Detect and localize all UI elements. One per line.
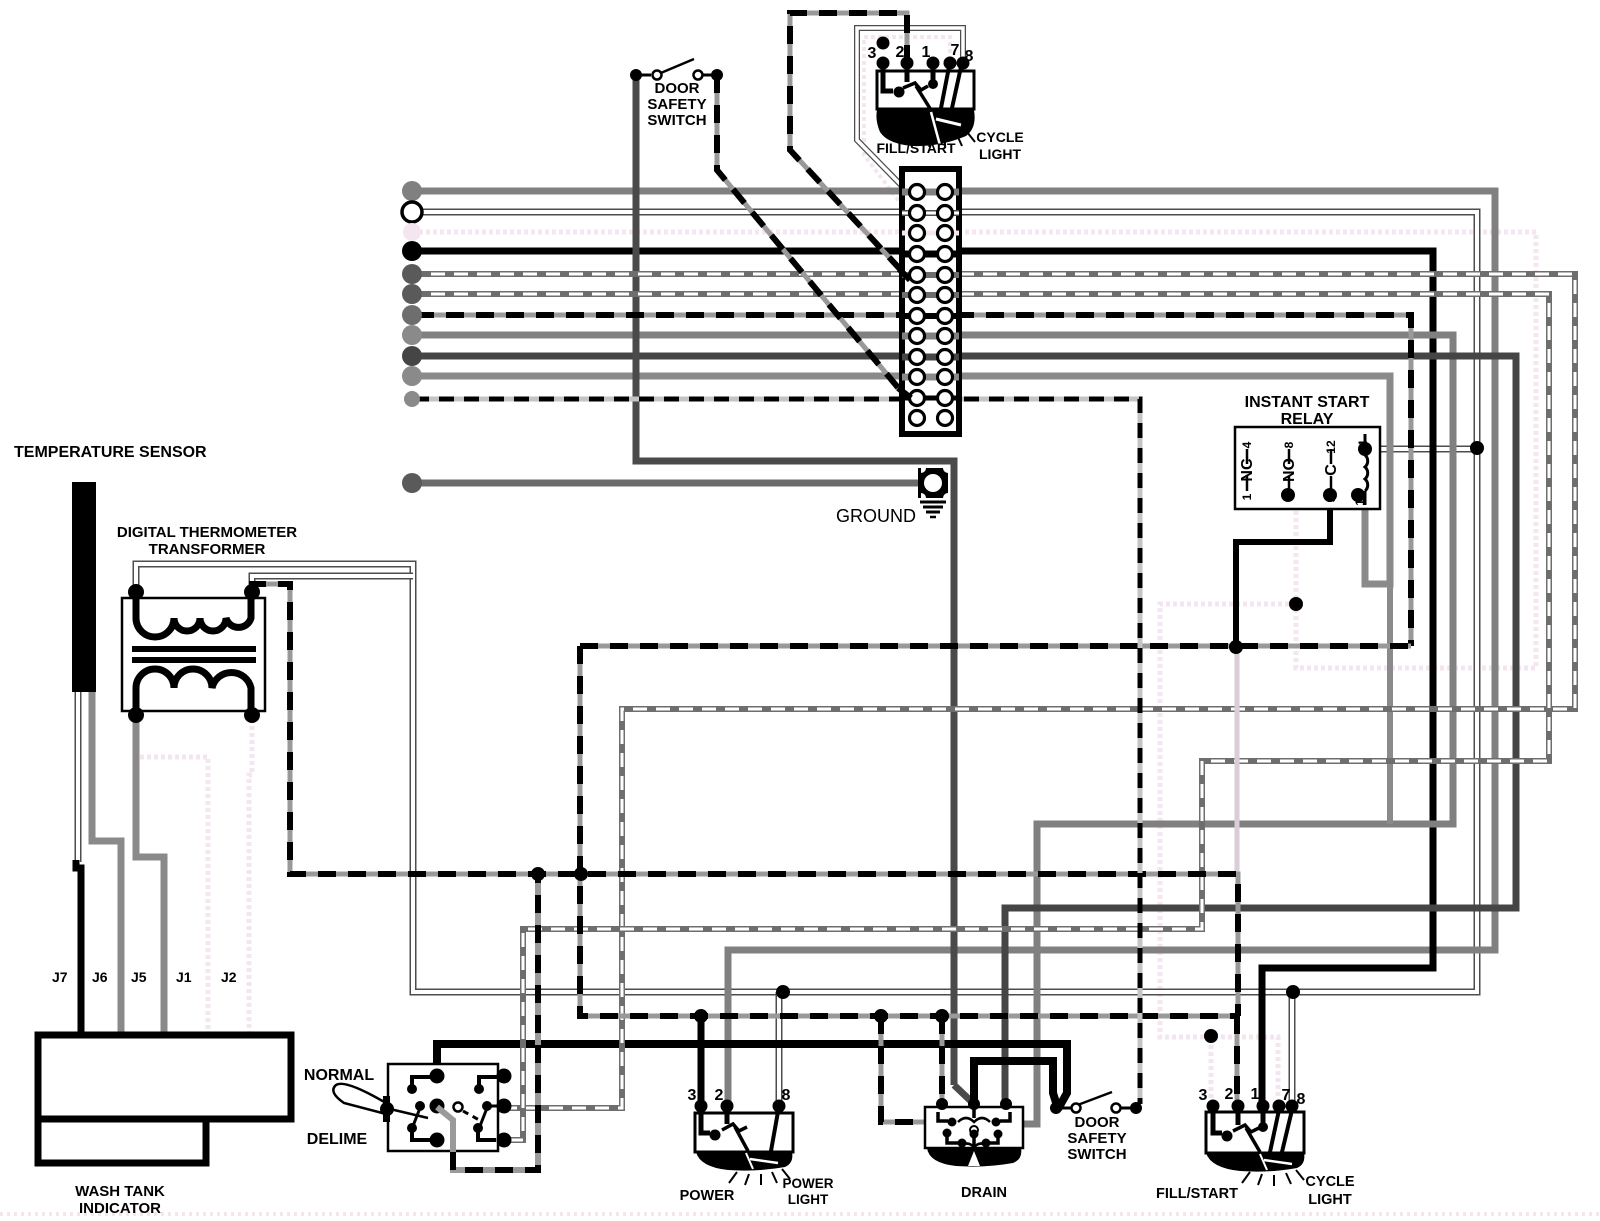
svg-text:POWER: POWER bbox=[680, 1188, 735, 1204]
svg-text:GROUND: GROUND bbox=[836, 506, 916, 526]
svg-text:1: 1 bbox=[922, 44, 931, 61]
svg-text:7: 7 bbox=[1282, 1087, 1291, 1104]
svg-text:8: 8 bbox=[965, 48, 974, 65]
svg-text:TRANSFORMER: TRANSFORMER bbox=[149, 541, 266, 558]
svg-text:SAFETY: SAFETY bbox=[647, 96, 706, 113]
svg-text:CYCLE: CYCLE bbox=[976, 129, 1023, 145]
svg-text:LIGHT: LIGHT bbox=[788, 1192, 829, 1207]
svg-text:3: 3 bbox=[868, 45, 877, 62]
svg-text:FILL/START: FILL/START bbox=[876, 140, 956, 156]
svg-text:DELIME: DELIME bbox=[307, 1131, 368, 1148]
svg-text:POWER: POWER bbox=[782, 1176, 833, 1191]
svg-text:NORMAL: NORMAL bbox=[304, 1067, 374, 1084]
svg-text:4: 4 bbox=[1240, 441, 1254, 448]
svg-text:SWITCH: SWITCH bbox=[1067, 1146, 1126, 1163]
svg-text:J2: J2 bbox=[221, 969, 237, 985]
svg-text:RELAY: RELAY bbox=[1281, 411, 1334, 428]
svg-text:8: 8 bbox=[1297, 1091, 1306, 1108]
svg-text:DOOR: DOOR bbox=[1075, 1114, 1120, 1131]
svg-text:2: 2 bbox=[1225, 1086, 1234, 1103]
svg-text:DOOR: DOOR bbox=[655, 80, 700, 97]
svg-text:DRAIN: DRAIN bbox=[961, 1185, 1007, 1201]
svg-text:FILL/START: FILL/START bbox=[1156, 1186, 1238, 1202]
svg-text:WASH TANK: WASH TANK bbox=[75, 1183, 165, 1200]
svg-text:CYCLE: CYCLE bbox=[1305, 1174, 1354, 1190]
svg-text:J6: J6 bbox=[92, 969, 108, 985]
svg-text:J7: J7 bbox=[52, 969, 68, 985]
svg-text:INSTANT START: INSTANT START bbox=[1245, 394, 1370, 411]
svg-text:1: 1 bbox=[1240, 493, 1254, 500]
svg-text:INDICATOR: INDICATOR bbox=[79, 1200, 161, 1217]
svg-text:DIGITAL THERMOMETER: DIGITAL THERMOMETER bbox=[117, 524, 297, 541]
svg-text:C: C bbox=[1323, 464, 1340, 476]
svg-text:J1: J1 bbox=[176, 969, 192, 985]
svg-text:8: 8 bbox=[782, 1087, 791, 1104]
svg-text:2: 2 bbox=[896, 44, 905, 61]
svg-text:LIGHT: LIGHT bbox=[979, 146, 1021, 162]
svg-text:SAFETY: SAFETY bbox=[1067, 1130, 1126, 1147]
svg-text:J5: J5 bbox=[131, 969, 147, 985]
svg-text:3: 3 bbox=[688, 1087, 697, 1104]
svg-text:TEMPERATURE SENSOR: TEMPERATURE SENSOR bbox=[14, 444, 207, 461]
svg-text:3: 3 bbox=[1199, 1087, 1208, 1104]
svg-text:2: 2 bbox=[715, 1087, 724, 1104]
svg-text:SWITCH: SWITCH bbox=[647, 112, 706, 129]
svg-text:1: 1 bbox=[1251, 1086, 1260, 1103]
svg-text:7: 7 bbox=[951, 42, 960, 59]
svg-text:8: 8 bbox=[1282, 441, 1296, 448]
svg-text:LIGHT: LIGHT bbox=[1308, 1192, 1352, 1208]
